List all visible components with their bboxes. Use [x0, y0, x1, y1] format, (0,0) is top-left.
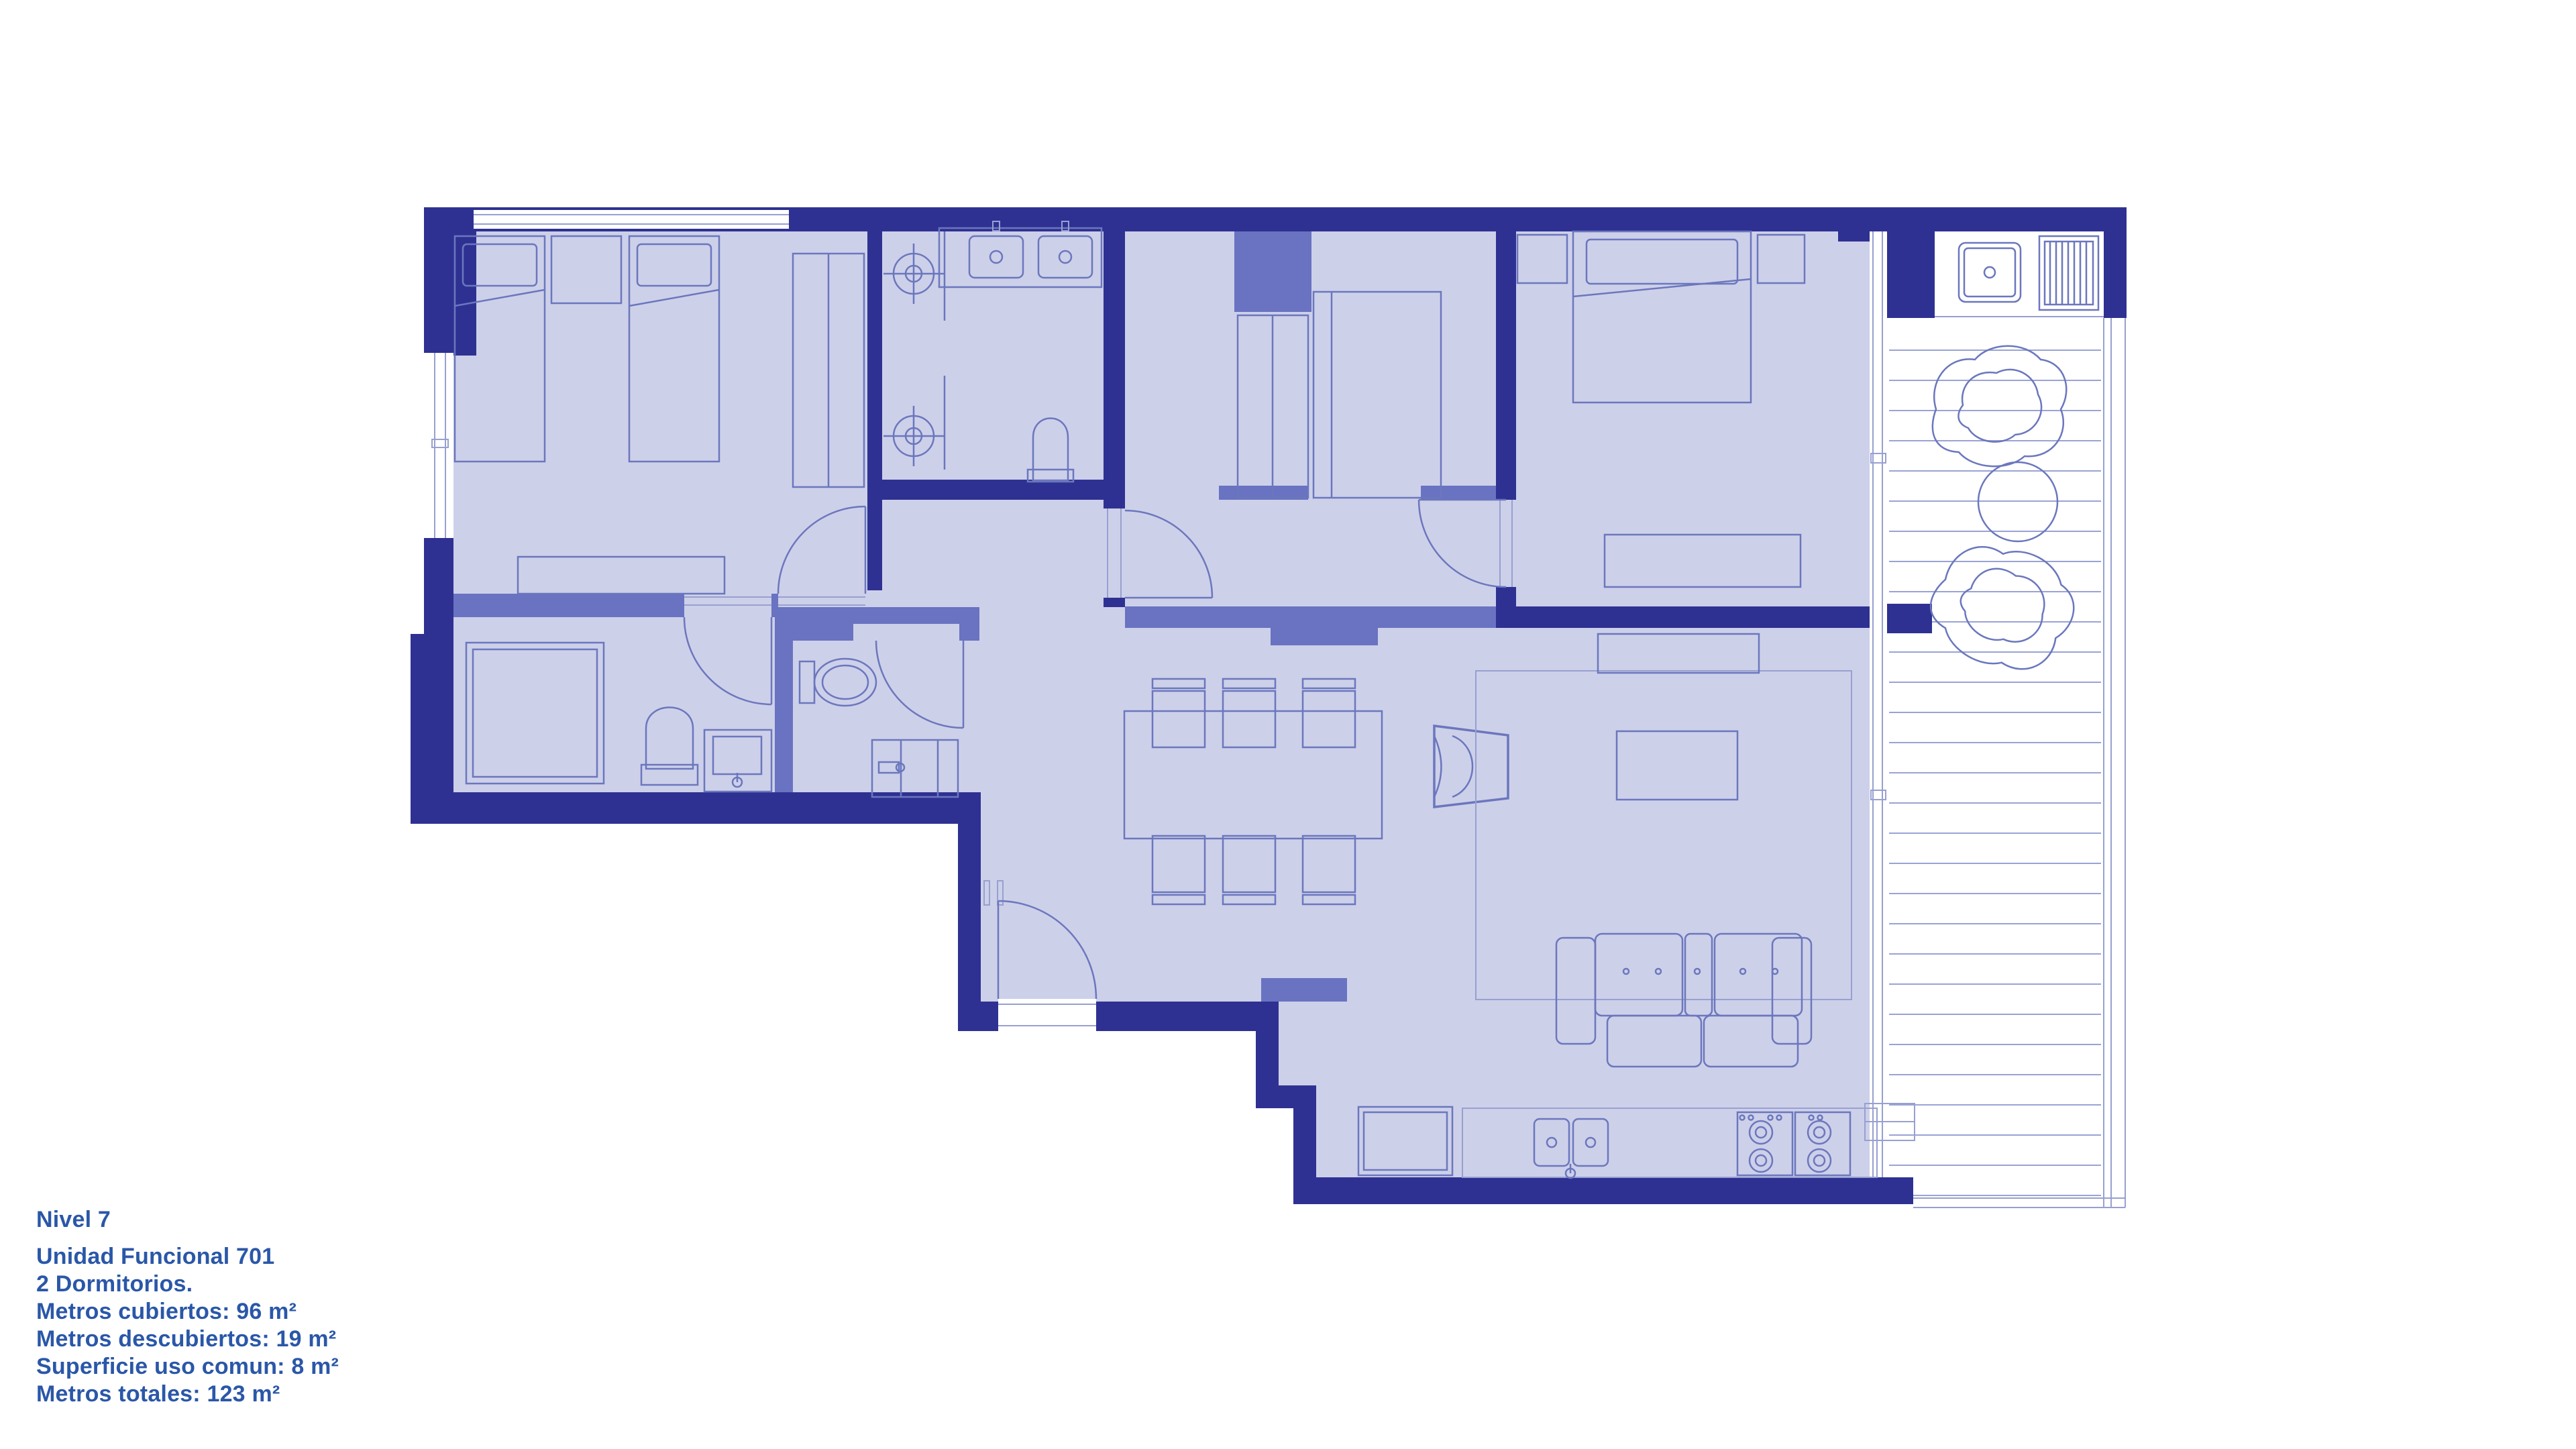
- total-area-label: Metros totales: 123 m²: [36, 1381, 339, 1408]
- covered-floor: [411, 207, 1887, 1204]
- plant-icon: [1915, 522, 2090, 691]
- level-label: Nivel 7: [36, 1206, 339, 1234]
- balcony-terrace: [1913, 231, 2125, 1207]
- uncovered-area-label: Metros descubiertos: 19 m²: [36, 1326, 339, 1353]
- common-area-label: Superficie uso comun: 8 m²: [36, 1353, 339, 1381]
- unit-label: Unidad Funcional 701: [36, 1243, 339, 1271]
- plant-icon: [1933, 346, 2066, 466]
- railing-icon: [1913, 318, 2125, 1207]
- info-panel: Nivel 7 Unidad Funcional 701 2 Dormitori…: [36, 1206, 339, 1408]
- covered-area-label: Metros cubiertos: 96 m²: [36, 1298, 339, 1326]
- floor-plan-drawing: [0, 0, 2576, 1449]
- floor-plan-page: Nivel 7 Unidad Funcional 701 2 Dormitori…: [0, 0, 2576, 1449]
- bedrooms-label: 2 Dormitorios.: [36, 1271, 339, 1298]
- round-table-icon: [1978, 462, 2057, 541]
